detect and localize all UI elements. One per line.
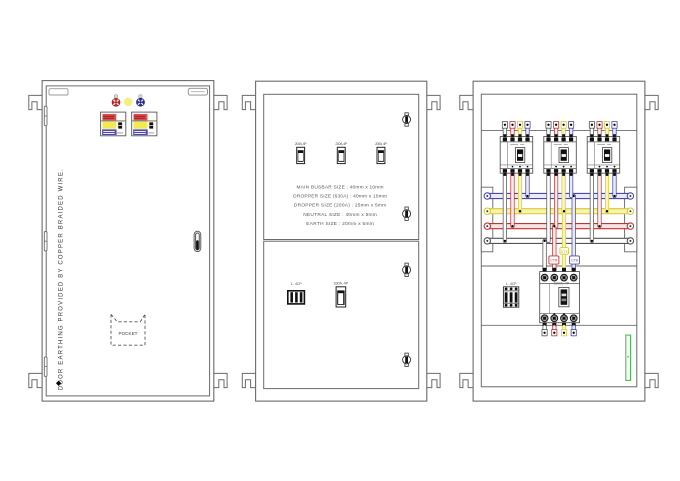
svg-text:POCKET: POCKET	[119, 331, 138, 336]
svg-text:DROPPER SIZE (200A) : 25mm x 5: DROPPER SIZE (200A) : 25mm x 5mm	[294, 202, 386, 208]
svg-text:630A, 4P: 630A, 4P	[334, 281, 349, 285]
svg-text:CTY: CTY	[561, 250, 569, 254]
svg-text:200A, 4P: 200A, 4P	[295, 142, 307, 146]
svg-text:EARTH SIZE : 20mm x 5mm: EARTH SIZE : 20mm x 5mm	[306, 221, 374, 227]
svg-text:1 - 4CP: 1 - 4CP	[291, 282, 303, 286]
svg-text:DROPPER SIZE (630A) : 40mm x 1: DROPPER SIZE (630A) : 40mm x 10mm	[293, 193, 387, 199]
svg-text:CTB: CTB	[571, 259, 579, 263]
svg-text:MAIN BUSBAR SIZE : 40mm x 10mm: MAIN BUSBAR SIZE : 40mm x 10mm	[297, 184, 384, 190]
svg-text:CTR: CTR	[550, 259, 558, 263]
svg-text:NEUTRAL SIZE : 40mm x 5mm: NEUTRAL SIZE : 40mm x 5mm	[303, 212, 377, 218]
svg-text:DOOR EARTHING PROVIDED BY COPP: DOOR EARTHING PROVIDED BY COPPER BRAIDED…	[59, 169, 65, 390]
svg-text:200A, 4P: 200A, 4P	[375, 142, 387, 146]
svg-text:630A, 4P: 630A, 4P	[554, 282, 570, 286]
svg-text:200A, 4P: 200A, 4P	[335, 142, 347, 146]
svg-text:1 - 4CP: 1 - 4CP	[506, 282, 517, 286]
